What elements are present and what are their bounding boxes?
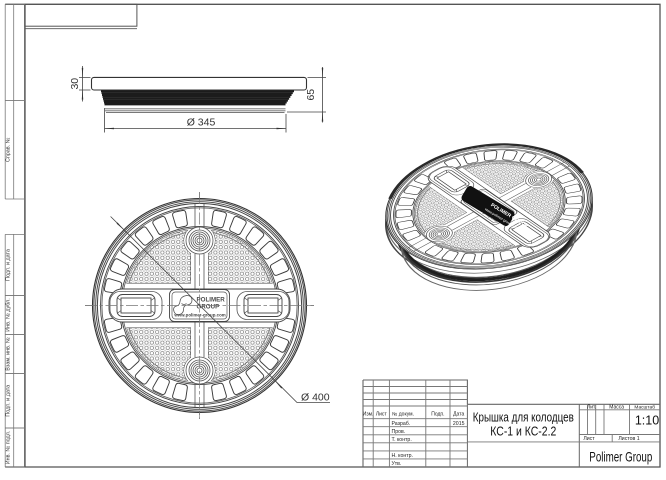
svg-text:Изм.: Изм. [363,412,374,418]
svg-text:2015: 2015 [453,421,465,427]
svg-text:Масштаб: Масштаб [634,405,655,411]
svg-text:Лист: Лист [583,436,595,442]
svg-text:Взам. инв. №: Взам. инв. № [6,337,12,371]
svg-text:Н. контр.: Н. контр. [392,453,413,459]
svg-text:Лит.: Лит. [587,405,596,411]
svg-text:Дата: Дата [453,412,464,418]
svg-text:30: 30 [69,78,81,90]
svg-text:Листов 1: Листов 1 [618,436,639,442]
svg-text:Polimer Group: Polimer Group [589,449,652,465]
svg-text:Утв.: Утв. [392,461,402,467]
svg-text:КС-1 и КС-2.2: КС-1 и КС-2.2 [490,425,556,439]
svg-text:Ø 400: Ø 400 [301,392,330,404]
svg-text:Разраб.: Разраб. [392,421,411,427]
svg-text:Инв. № подл.: Инв. № подл. [6,431,12,465]
svg-text:Лист: Лист [376,412,388,418]
svg-text:Подп.: Подп. [431,412,444,418]
svg-text:Масса: Масса [609,405,624,411]
svg-text:1:10: 1:10 [635,414,659,428]
svg-text:Ø 345: Ø 345 [187,117,216,129]
svg-text:Т. контр.: Т. контр. [392,437,412,443]
svg-text:65: 65 [305,89,317,101]
svg-text:Подп. и дата: Подп. и дата [6,249,12,281]
svg-text:Инв. № дубл.: Инв. № дубл. [6,298,12,331]
svg-text:Подп. и дата: Подп. и дата [6,385,12,417]
svg-text:Справ. №: Справ. № [6,137,12,162]
svg-text:Крышка для колодцев: Крышка для колодцев [473,411,574,425]
svg-text:Пров.: Пров. [392,429,406,435]
svg-text:№ докум.: № докум. [392,412,414,418]
